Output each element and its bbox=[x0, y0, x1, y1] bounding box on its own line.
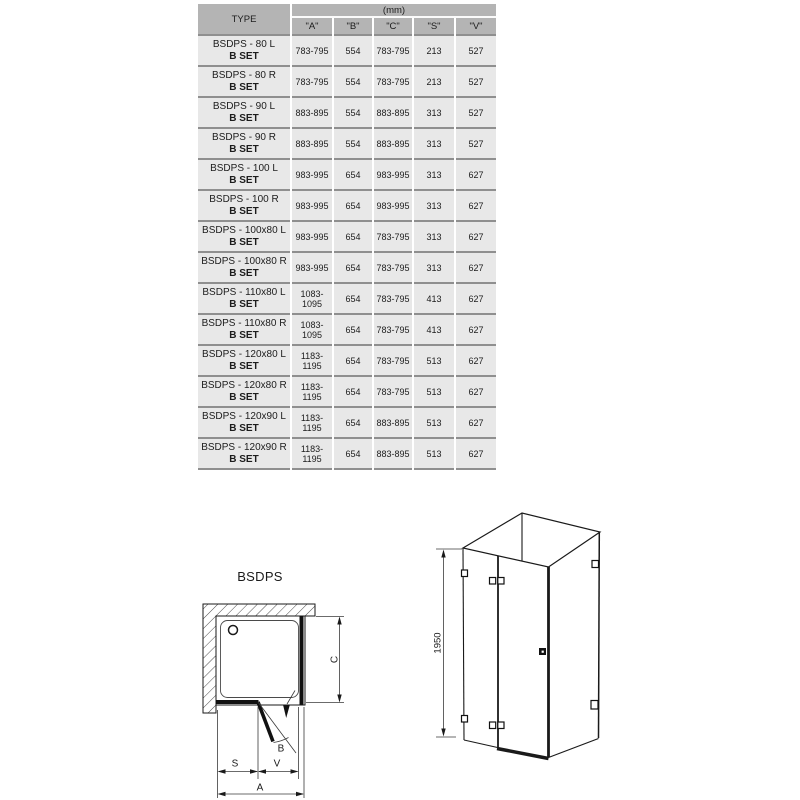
value-cell-a: 1183-1195 bbox=[292, 346, 332, 377]
value-cell-v: 627 bbox=[456, 346, 496, 377]
table-row: BSDPS - 110x80 L B SET 1083-1095 654 783… bbox=[198, 284, 496, 315]
value-cell-b: 654 bbox=[334, 253, 372, 284]
table-row: BSDPS - 110x80 R B SET 1083-1095 654 783… bbox=[198, 315, 496, 346]
value-cell-v: 627 bbox=[456, 222, 496, 253]
dim-v-label: V bbox=[274, 759, 281, 770]
drain-icon bbox=[229, 626, 238, 635]
value-cell-v: 527 bbox=[456, 67, 496, 98]
value-cell-a: 983-995 bbox=[292, 160, 332, 191]
set-label: B SET bbox=[198, 361, 290, 373]
type-column-header: TYPE bbox=[198, 4, 290, 36]
dimension-sva: S V A bbox=[218, 707, 305, 798]
value-cell-b: 654 bbox=[334, 346, 372, 377]
hinge-brackets bbox=[462, 561, 599, 729]
value-cell-a: 983-995 bbox=[292, 253, 332, 284]
set-label: B SET bbox=[198, 392, 290, 404]
model-cell: BSDPS - 120x80 L B SET bbox=[198, 346, 290, 377]
value-cell-v: 627 bbox=[456, 284, 496, 315]
set-label: B SET bbox=[198, 423, 290, 435]
value-cell-c: 783-795 bbox=[374, 67, 412, 98]
model-cell: BSDPS - 110x80 L B SET bbox=[198, 284, 290, 315]
value-cell-c: 783-795 bbox=[374, 36, 412, 67]
set-label: B SET bbox=[198, 454, 290, 466]
table-row: BSDPS - 80 R B SET 783-795 554 783-795 2… bbox=[198, 67, 496, 98]
value-cell-c: 783-795 bbox=[374, 222, 412, 253]
value-cell-c: 883-895 bbox=[374, 98, 412, 129]
model-name: BSDPS - 80 L bbox=[198, 39, 290, 51]
value-cell-b: 654 bbox=[334, 284, 372, 315]
door-knob-icon bbox=[539, 648, 546, 655]
model-cell: BSDPS - 100x80 L B SET bbox=[198, 222, 290, 253]
model-name: BSDPS - 100 R bbox=[198, 194, 290, 206]
value-cell-c: 783-795 bbox=[374, 346, 412, 377]
value-cell-c: 783-795 bbox=[374, 377, 412, 408]
value-cell-b: 654 bbox=[334, 408, 372, 439]
model-name: BSDPS - 90 R bbox=[198, 132, 290, 144]
value-cell-v: 627 bbox=[456, 191, 496, 222]
table-row: BSDPS - 100x80 L B SET 983-995 654 783-7… bbox=[198, 222, 496, 253]
value-cell-s: 313 bbox=[414, 222, 454, 253]
value-cell-a: 783-795 bbox=[292, 36, 332, 67]
value-cell-s: 313 bbox=[414, 160, 454, 191]
set-label: B SET bbox=[198, 51, 290, 63]
value-cell-v: 527 bbox=[456, 36, 496, 67]
table-row: BSDPS - 90 L B SET 883-895 554 883-895 3… bbox=[198, 98, 496, 129]
shower-tray bbox=[216, 616, 305, 705]
table-header: TYPE (mm) "A" "B" "C" "S" "V" bbox=[198, 4, 496, 36]
table-row: BSDPS - 120x90 L B SET 1183-1195 654 883… bbox=[198, 408, 496, 439]
value-cell-s: 313 bbox=[414, 191, 454, 222]
value-cell-b: 654 bbox=[334, 160, 372, 191]
value-cell-s: 513 bbox=[414, 439, 454, 470]
value-cell-a: 883-895 bbox=[292, 98, 332, 129]
value-cell-v: 627 bbox=[456, 253, 496, 284]
dim-c-label: C bbox=[330, 656, 341, 663]
value-cell-v: 627 bbox=[456, 160, 496, 191]
hinge-icon bbox=[591, 701, 598, 710]
value-cell-v: 627 bbox=[456, 408, 496, 439]
value-cell-s: 413 bbox=[414, 284, 454, 315]
spec-sheet-page: TYPE (mm) "A" "B" "C" "S" "V" BSDPS - 80… bbox=[0, 0, 800, 800]
value-cell-s: 213 bbox=[414, 36, 454, 67]
height-label: 1950 bbox=[433, 632, 444, 653]
set-label: B SET bbox=[198, 299, 290, 311]
model-name: BSDPS - 80 R bbox=[198, 70, 290, 82]
model-cell: BSDPS - 100 L B SET bbox=[198, 160, 290, 191]
set-label: B SET bbox=[198, 175, 290, 187]
table-row: BSDPS - 100 L B SET 983-995 654 983-995 … bbox=[198, 160, 496, 191]
table-row: BSDPS - 90 R B SET 883-895 554 883-895 3… bbox=[198, 129, 496, 160]
table-row: BSDPS - 120x90 R B SET 1183-1195 654 883… bbox=[198, 439, 496, 470]
value-cell-s: 513 bbox=[414, 408, 454, 439]
model-cell: BSDPS - 110x80 R B SET bbox=[198, 315, 290, 346]
value-cell-c: 983-995 bbox=[374, 191, 412, 222]
table-row: BSDPS - 120x80 R B SET 1183-1195 654 783… bbox=[198, 377, 496, 408]
door-direction-arrow-icon bbox=[283, 705, 290, 718]
model-cell: BSDPS - 120x90 L B SET bbox=[198, 408, 290, 439]
value-cell-c: 883-895 bbox=[374, 129, 412, 160]
model-cell: BSDPS - 120x90 R B SET bbox=[198, 439, 290, 470]
model-name: BSDPS - 120x80 L bbox=[198, 349, 290, 361]
model-name: BSDPS - 110x80 L bbox=[198, 287, 290, 299]
value-cell-c: 983-995 bbox=[374, 160, 412, 191]
model-name: BSDPS - 100x80 L bbox=[198, 225, 290, 237]
value-cell-b: 654 bbox=[334, 191, 372, 222]
set-label: B SET bbox=[198, 237, 290, 249]
set-label: B SET bbox=[198, 268, 290, 280]
angle-b-label: B bbox=[278, 744, 285, 755]
value-cell-s: 513 bbox=[414, 377, 454, 408]
value-cell-a: 883-895 bbox=[292, 129, 332, 160]
value-cell-b: 554 bbox=[334, 129, 372, 160]
isometric-diagram: 1950 bbox=[425, 505, 610, 770]
value-cell-v: 527 bbox=[456, 98, 496, 129]
fixed-panel-right bbox=[300, 616, 304, 705]
enclosure-frame bbox=[463, 513, 600, 759]
value-cell-b: 554 bbox=[334, 98, 372, 129]
model-name: BSDPS - 90 L bbox=[198, 101, 290, 113]
column-header-v: "V" bbox=[456, 18, 496, 36]
hinge-icon bbox=[498, 722, 504, 729]
dimension-c: C bbox=[306, 617, 344, 703]
set-label: B SET bbox=[198, 206, 290, 218]
value-cell-c: 883-895 bbox=[374, 439, 412, 470]
model-name: BSDPS - 120x80 R bbox=[198, 380, 290, 392]
value-cell-s: 413 bbox=[414, 315, 454, 346]
top-view-diagram: B C S V A bbox=[190, 560, 355, 800]
table-row: BSDPS - 100 R B SET 983-995 654 983-995 … bbox=[198, 191, 496, 222]
hinge-icon bbox=[498, 578, 504, 585]
value-cell-c: 883-895 bbox=[374, 408, 412, 439]
model-name: BSDPS - 100x80 R bbox=[198, 256, 290, 268]
hinge-icon bbox=[592, 561, 599, 568]
column-header-c: "C" bbox=[374, 18, 412, 36]
value-cell-s: 313 bbox=[414, 253, 454, 284]
value-cell-c: 783-795 bbox=[374, 284, 412, 315]
model-cell: BSDPS - 120x80 R B SET bbox=[198, 377, 290, 408]
dimension-height: 1950 bbox=[433, 549, 463, 737]
hinge-icon bbox=[462, 570, 468, 577]
value-cell-b: 654 bbox=[334, 377, 372, 408]
value-cell-c: 783-795 bbox=[374, 315, 412, 346]
fixed-panel-bottom bbox=[216, 700, 259, 704]
set-label: B SET bbox=[198, 330, 290, 342]
value-cell-v: 627 bbox=[456, 377, 496, 408]
table-body: BSDPS - 80 L B SET 783-795 554 783-795 2… bbox=[198, 36, 496, 470]
unit-header: (mm) bbox=[292, 4, 496, 18]
model-cell: BSDPS - 100 R B SET bbox=[198, 191, 290, 222]
table-row: BSDPS - 120x80 L B SET 1183-1195 654 783… bbox=[198, 346, 496, 377]
set-label: B SET bbox=[198, 144, 290, 156]
value-cell-a: 1183-1195 bbox=[292, 439, 332, 470]
value-cell-a: 1183-1195 bbox=[292, 408, 332, 439]
table-row: BSDPS - 100x80 R B SET 983-995 654 783-7… bbox=[198, 253, 496, 284]
value-cell-s: 313 bbox=[414, 98, 454, 129]
model-name: BSDPS - 120x90 L bbox=[198, 411, 290, 423]
value-cell-b: 654 bbox=[334, 315, 372, 346]
set-label: B SET bbox=[198, 82, 290, 94]
value-cell-c: 783-795 bbox=[374, 253, 412, 284]
column-header-s: "S" bbox=[414, 18, 454, 36]
model-cell: BSDPS - 100x80 R B SET bbox=[198, 253, 290, 284]
model-name: BSDPS - 110x80 R bbox=[198, 318, 290, 330]
model-cell: BSDPS - 90 R B SET bbox=[198, 129, 290, 160]
set-label: B SET bbox=[198, 113, 290, 125]
hinge-icon bbox=[462, 716, 468, 723]
model-cell: BSDPS - 80 L B SET bbox=[198, 36, 290, 67]
model-name: BSDPS - 100 L bbox=[198, 163, 290, 175]
hinge-icon bbox=[490, 722, 496, 729]
table-row: BSDPS - 80 L B SET 783-795 554 783-795 2… bbox=[198, 36, 496, 67]
value-cell-v: 627 bbox=[456, 315, 496, 346]
value-cell-s: 213 bbox=[414, 67, 454, 98]
model-cell: BSDPS - 90 L B SET bbox=[198, 98, 290, 129]
column-header-b: "B" bbox=[334, 18, 372, 36]
value-cell-a: 783-795 bbox=[292, 67, 332, 98]
dim-s-label: S bbox=[232, 759, 239, 770]
value-cell-a: 983-995 bbox=[292, 191, 332, 222]
value-cell-a: 1083-1095 bbox=[292, 315, 332, 346]
value-cell-s: 513 bbox=[414, 346, 454, 377]
value-cell-a: 1183-1195 bbox=[292, 377, 332, 408]
value-cell-b: 554 bbox=[334, 67, 372, 98]
value-cell-a: 983-995 bbox=[292, 222, 332, 253]
value-cell-a: 1083-1095 bbox=[292, 284, 332, 315]
value-cell-v: 527 bbox=[456, 129, 496, 160]
model-cell: BSDPS - 80 R B SET bbox=[198, 67, 290, 98]
hinge-icon bbox=[490, 578, 496, 585]
value-cell-b: 654 bbox=[334, 439, 372, 470]
model-name: BSDPS - 120x90 R bbox=[198, 442, 290, 454]
value-cell-b: 654 bbox=[334, 222, 372, 253]
value-cell-s: 313 bbox=[414, 129, 454, 160]
dim-a-label: A bbox=[257, 783, 264, 794]
value-cell-v: 627 bbox=[456, 439, 496, 470]
column-header-a: "A" bbox=[292, 18, 332, 36]
dimension-table: TYPE (mm) "A" "B" "C" "S" "V" BSDPS - 80… bbox=[196, 4, 498, 470]
value-cell-b: 554 bbox=[334, 36, 372, 67]
